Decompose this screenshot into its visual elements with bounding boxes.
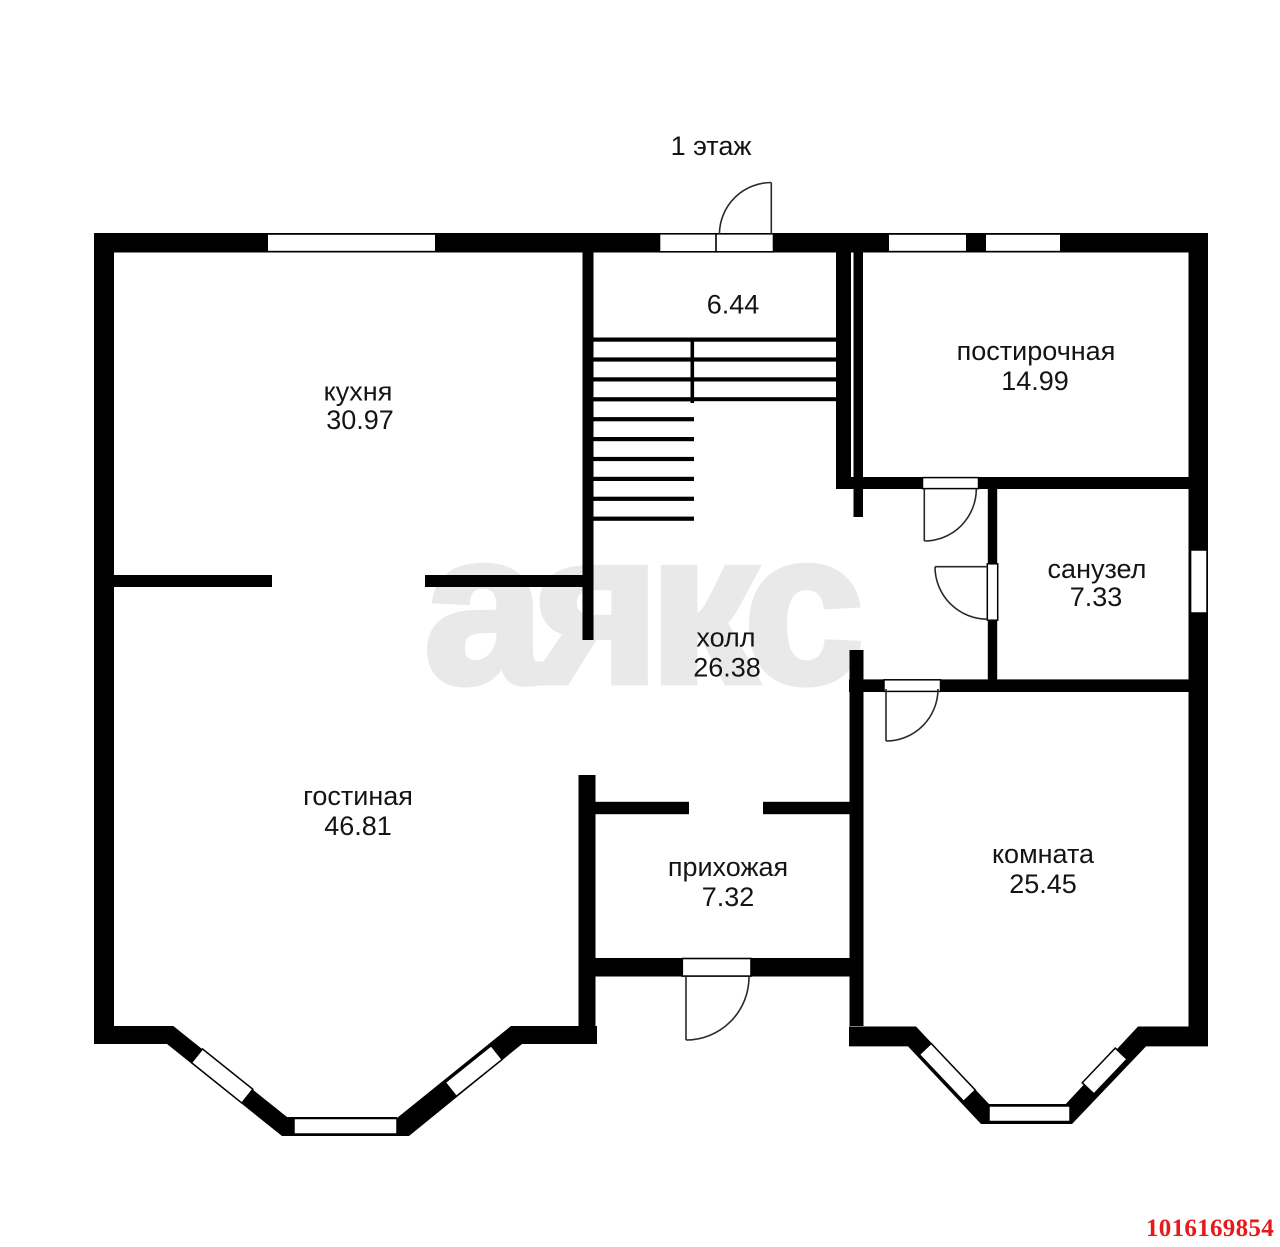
svg-text:прихожая: прихожая [668,852,788,882]
svg-text:26.38: 26.38 [693,653,761,683]
svg-text:7.33: 7.33 [1070,582,1123,612]
svg-text:кухня: кухня [324,377,393,407]
svg-text:6.44: 6.44 [707,290,760,320]
svg-text:25.45: 25.45 [1009,869,1077,899]
svg-text:санузел: санузел [1048,554,1147,584]
svg-text:7.32: 7.32 [702,882,755,912]
svg-text:46.81: 46.81 [324,811,392,841]
svg-text:постирочная: постирочная [957,336,1116,366]
svg-text:1 этаж: 1 этаж [671,131,752,161]
svg-text:холл: холл [696,623,755,653]
svg-text:аякс: аякс [424,487,858,728]
svg-text:комната: комната [992,839,1095,869]
svg-text:30.97: 30.97 [326,405,394,435]
svg-text:14.99: 14.99 [1001,366,1069,396]
svg-text:гостиная: гостиная [303,781,413,811]
svg-text:1016169854: 1016169854 [1146,1215,1274,1242]
